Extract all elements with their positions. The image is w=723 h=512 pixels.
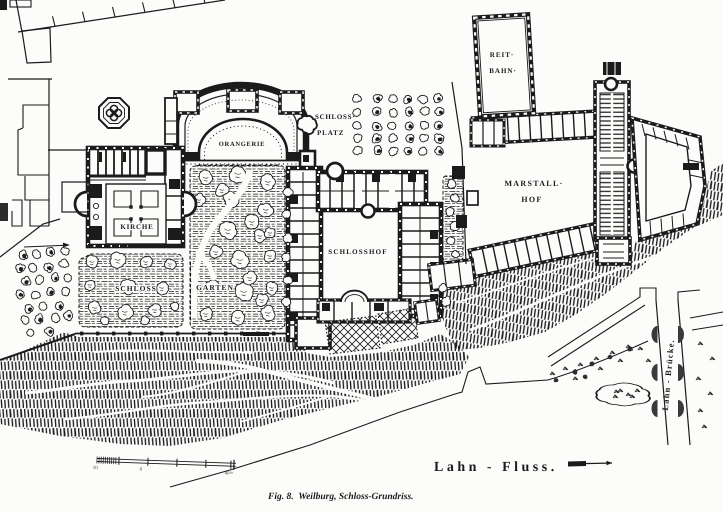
svg-text:SCHLOSS: SCHLOSS	[115, 284, 157, 293]
svg-text:ORANGERIE: ORANGERIE	[219, 141, 265, 148]
svg-text:Fig. 8. Weilburg, Schloss-Gru: Fig. 8. Weilburg, Schloss-Grundriss.	[267, 492, 414, 502]
svg-text:REIT·: REIT·	[490, 51, 514, 59]
svg-text:KIRCHE: KIRCHE	[120, 223, 153, 231]
svg-text:Lahn - Fluss.: Lahn - Fluss.	[434, 460, 558, 475]
svg-text:SCHLOSSHOF: SCHLOSSHOF	[328, 248, 387, 256]
svg-text:HOF: HOF	[521, 195, 542, 204]
svg-text:MARSTALL·: MARSTALL·	[504, 179, 563, 188]
svg-text:BAHN·: BAHN·	[489, 67, 517, 75]
svg-text:GARTEN: GARTEN	[196, 283, 234, 292]
svg-text:SCHLOSS·: SCHLOSS·	[315, 113, 355, 121]
svg-text:10: 10	[93, 466, 99, 471]
svg-text:PLATZ: PLATZ	[317, 129, 344, 137]
